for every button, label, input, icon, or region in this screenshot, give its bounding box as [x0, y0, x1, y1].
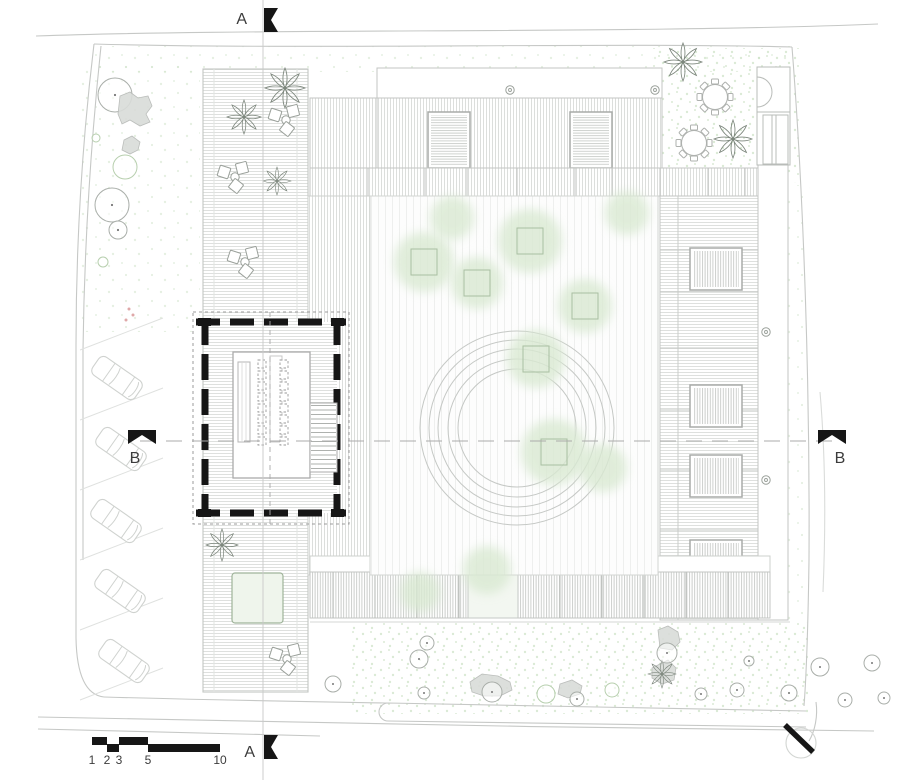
- room-chair: [258, 371, 266, 379]
- scale-bar-label: 5: [145, 753, 152, 767]
- tree-trunk-dot: [883, 697, 885, 699]
- cluster-chair: [235, 161, 248, 174]
- tree-trunk-dot: [491, 691, 493, 693]
- room-chair: [258, 404, 266, 412]
- scale-bar-segment: [148, 744, 220, 752]
- arcade-band: [310, 168, 770, 196]
- stipple-right-edge: [788, 185, 810, 620]
- flower-speck: [128, 308, 131, 311]
- tree-canopy: [507, 330, 565, 388]
- tree-trunk-dot: [418, 658, 420, 660]
- road-line-bottom-2: [38, 729, 320, 736]
- section-label-a-top: A: [236, 11, 247, 28]
- car: [88, 497, 143, 545]
- room-chair: [258, 382, 266, 390]
- room-chair: [258, 360, 266, 368]
- room-chair: [258, 426, 266, 434]
- room-chair: [280, 393, 288, 401]
- sidewalk-edge-left: [104, 697, 388, 703]
- room-chair: [258, 393, 266, 401]
- scale-bar-label: 3: [116, 753, 123, 767]
- room-chair: [280, 404, 288, 412]
- tree: [537, 685, 555, 703]
- walkway-planter-box: [232, 573, 283, 623]
- road-line-bottom-1: [38, 717, 874, 731]
- tree-canopy: [394, 232, 454, 292]
- cluster-chair: [286, 104, 299, 117]
- room-chair: [280, 426, 288, 434]
- tree-trunk-dot: [844, 699, 846, 701]
- tree-trunk-dot: [819, 666, 821, 668]
- tree-trunk-dot: [426, 642, 428, 644]
- bench-row: [238, 362, 250, 442]
- scale-bar-segment: [119, 737, 148, 745]
- round-table: [676, 125, 712, 161]
- tree: [113, 155, 137, 179]
- room-chair: [280, 360, 288, 368]
- tree-canopy: [521, 419, 587, 485]
- section-flag-icon: [818, 430, 846, 444]
- cluster-chair: [245, 246, 258, 259]
- section-label-a-bottom: A: [244, 744, 255, 761]
- car: [96, 637, 151, 685]
- tree-canopy: [579, 444, 627, 492]
- tree-trunk-dot: [117, 229, 119, 231]
- tree-canopy: [558, 279, 612, 333]
- tree-trunk-dot: [788, 692, 790, 694]
- room-chair: [280, 382, 288, 390]
- road-line-top-outer: [36, 24, 878, 36]
- driveway-curve: [809, 702, 817, 741]
- tree-trunk-dot: [332, 683, 334, 685]
- skylight-hatch: [693, 388, 739, 424]
- roof-drain: [651, 86, 659, 94]
- section-flag-icon: [264, 8, 278, 32]
- bottom-wing-roof: [310, 572, 770, 618]
- tree-trunk-dot: [736, 689, 738, 691]
- parked-cars: [88, 354, 151, 685]
- top-wing-gutter: [377, 68, 662, 98]
- kiosk-outline: [757, 67, 790, 165]
- tree-canopy: [400, 572, 440, 612]
- room-chair: [280, 371, 288, 379]
- flower-speck: [132, 314, 135, 317]
- tree-canopy: [463, 546, 511, 594]
- roof-drain: [762, 476, 770, 484]
- section-marker-a-bottom: A: [244, 735, 278, 761]
- cut-building: [193, 312, 349, 526]
- roof-drain: [762, 328, 770, 336]
- scale-bar: 123510: [89, 737, 227, 767]
- tree: [92, 134, 100, 142]
- car: [92, 567, 147, 615]
- tree-canopy: [605, 191, 649, 235]
- rock-blob: [118, 92, 152, 126]
- site-line-right-faint: [820, 392, 825, 592]
- courtyard: [370, 191, 658, 612]
- tree-trunk-dot: [700, 693, 702, 695]
- stair-treads: [311, 404, 336, 471]
- top-wing-roof: [377, 98, 662, 168]
- round-table: [697, 79, 733, 115]
- skylight-hatch: [573, 115, 609, 165]
- tree: [605, 683, 619, 697]
- room-chair: [258, 415, 266, 423]
- section-label-b-right: B: [835, 450, 846, 467]
- skylight-hatch: [431, 115, 467, 165]
- flower-speck: [125, 319, 128, 322]
- cluster-chair: [287, 643, 300, 656]
- roof-drain: [506, 86, 514, 94]
- entrance-gate-icon: [785, 725, 813, 752]
- section-marker-a-top: A: [236, 8, 278, 32]
- kiosk: [757, 67, 790, 165]
- car: [89, 354, 144, 402]
- section-label-b-left: B: [130, 450, 141, 467]
- tree: [98, 257, 108, 267]
- scale-bar-label: 10: [213, 753, 227, 767]
- right-gutter-strip: [758, 165, 788, 620]
- scale-bar-segment: [92, 737, 107, 745]
- site-plan-drawing: A A B B 123510: [0, 0, 915, 780]
- tree-canopy: [498, 209, 562, 273]
- skylight-hatch: [693, 251, 739, 287]
- tree-trunk-dot: [748, 660, 750, 662]
- right-wing: [660, 165, 788, 620]
- tree-trunk-dot: [666, 652, 668, 654]
- scale-bar-label: 2: [104, 753, 111, 767]
- scale-bar-segment: [107, 744, 119, 752]
- section-marker-b-right: B: [818, 430, 846, 467]
- scale-bar-label: 1: [89, 753, 96, 767]
- room-chair: [280, 415, 288, 423]
- tree-trunk-dot: [423, 692, 425, 694]
- site-plan-canvas: A A B B 123510: [0, 0, 915, 780]
- section-flag-icon: [128, 430, 156, 444]
- skylight-hatch: [693, 458, 739, 494]
- tree-trunk-dot: [576, 698, 578, 700]
- tree-canopy: [451, 257, 503, 309]
- tree-trunk-dot: [871, 662, 873, 664]
- tree-trunk-dot: [114, 94, 116, 96]
- tree-canopy: [430, 196, 474, 240]
- section-flag-icon: [264, 735, 278, 759]
- tree-trunk-dot: [111, 204, 113, 206]
